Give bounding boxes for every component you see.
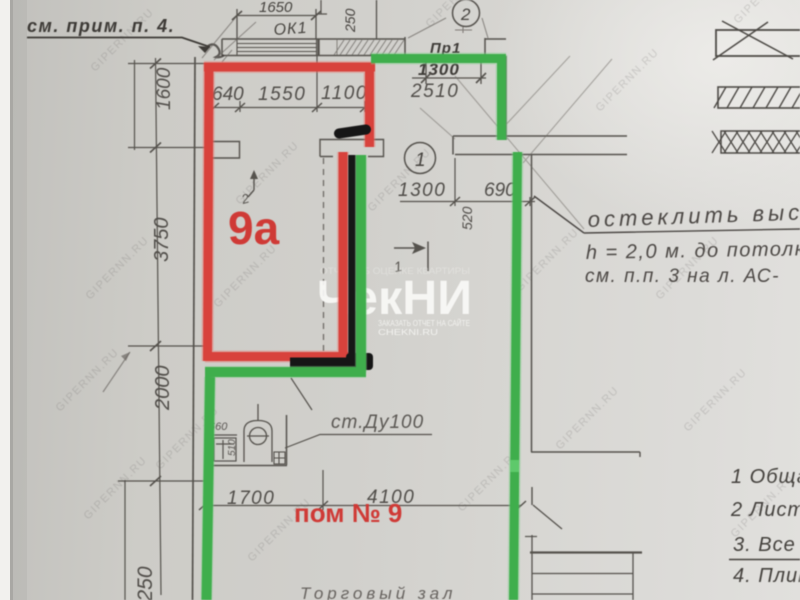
svg-text:GIPERNN.RU: GIPERNN.RU	[84, 234, 152, 302]
svg-text:2 Листы: 2 Листы	[730, 499, 800, 521]
svg-text:см. прим. п. 4.: см. прим. п. 4.	[27, 16, 175, 36]
svg-text:250: 250	[342, 8, 358, 33]
svg-text:3750: 3750	[151, 218, 173, 263]
svg-text:1600: 1600	[154, 67, 175, 110]
svg-text:GIPERNN.RU: GIPERNN.RU	[732, 0, 800, 26]
svg-text:2510: 2510	[410, 81, 459, 102]
svg-text:640: 640	[212, 84, 244, 105]
svg-text:1550: 1550	[258, 84, 306, 105]
svg-text:остеклить выс: остеклить выс	[587, 199, 800, 232]
svg-text:CHEKNI.RU: CHEKNI.RU	[378, 328, 438, 337]
svg-text:520: 520	[459, 206, 475, 230]
svg-text:250: 250	[134, 566, 157, 600]
svg-text:2000: 2000	[152, 366, 174, 412]
svg-text:1: 1	[415, 150, 426, 171]
svg-text:1 Общая: 1 Общая	[731, 466, 800, 488]
svg-text:1650: 1650	[259, 0, 293, 16]
svg-text:ОК1: ОК1	[273, 20, 308, 39]
svg-text:1300: 1300	[398, 180, 446, 201]
svg-text:Торговый зал: Торговый зал	[300, 584, 457, 600]
svg-text:ЗАКАЗАТЬ ОТЧЕТ НА САЙТЕ: ЗАКАЗАТЬ ОТЧЕТ НА САЙТЕ	[378, 319, 470, 328]
svg-text:GIPERNN.RU: GIPERNN.RU	[554, 384, 622, 452]
svg-text:GIPERNN.RU: GIPERNN.RU	[82, 454, 150, 522]
svg-text:пом № 9: пом № 9	[294, 498, 402, 528]
svg-text:ст.Ду100: ст.Ду100	[331, 412, 424, 433]
svg-text:4. Плит: 4. Плит	[733, 565, 800, 587]
svg-text:9а: 9а	[228, 202, 280, 254]
svg-text:3. Все: 3. Все	[733, 534, 796, 556]
svg-text:GIPERNN.RU: GIPERNN.RU	[594, 46, 662, 114]
svg-text:2: 2	[460, 5, 471, 24]
svg-text:1100: 1100	[321, 83, 368, 104]
svg-text:GIPERNN.RU: GIPERNN.RU	[424, 0, 492, 30]
svg-text:GIPERNN.RU: GIPERNN.RU	[682, 366, 750, 434]
svg-text:h = 2,0 м. до потолк: h = 2,0 м. до потолк	[586, 238, 800, 264]
svg-text:см. п.п. 3 на л. АС-: см. п.п. 3 на л. АС-	[585, 266, 780, 287]
svg-text:GIPERNN.RU: GIPERNN.RU	[514, 226, 582, 294]
svg-text:510: 510	[227, 439, 238, 456]
